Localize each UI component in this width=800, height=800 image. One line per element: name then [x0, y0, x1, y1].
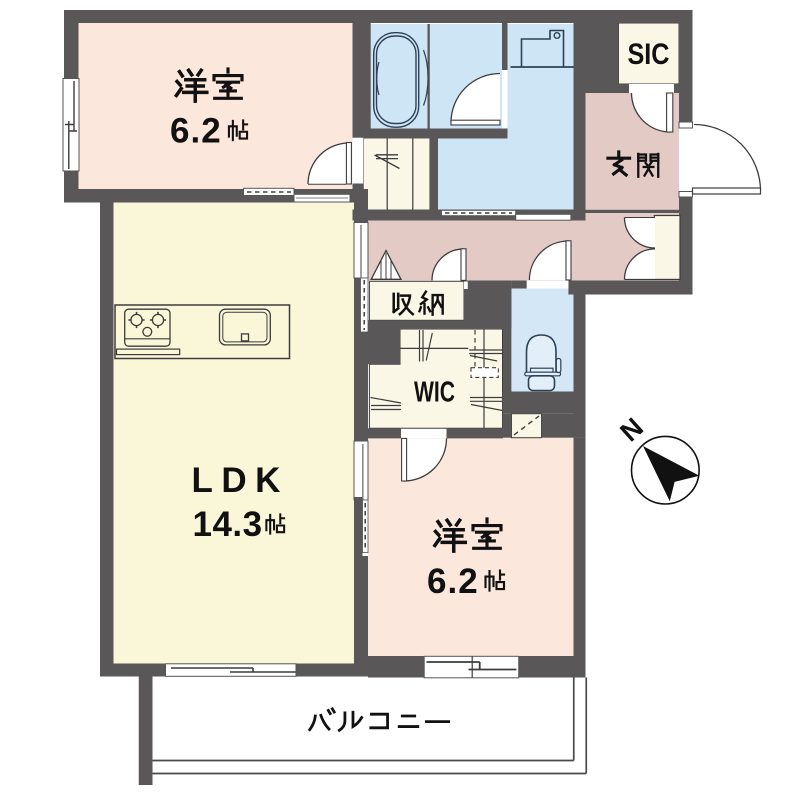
svg-text:6.2: 6.2	[427, 562, 479, 601]
svg-text:WIC: WIC	[414, 377, 455, 409]
svg-text:6.2: 6.2	[170, 112, 222, 151]
svg-text:LDK: LDK	[192, 461, 289, 500]
svg-text:14.3: 14.3	[193, 505, 263, 544]
svg-text:SIC: SIC	[628, 38, 670, 71]
